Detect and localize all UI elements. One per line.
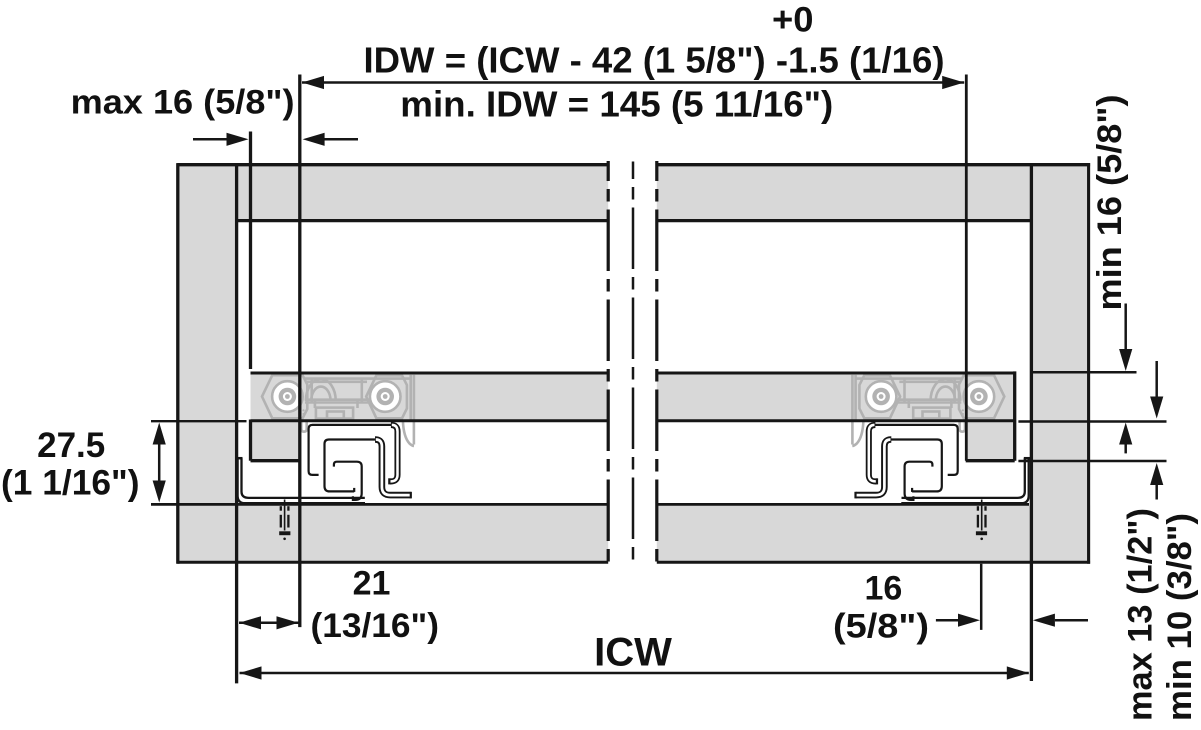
svg-text:IDW = (ICW - 42 (1 5/8") -1.5: IDW = (ICW - 42 (1 5/8") -1.5 (1/16)	[364, 39, 945, 80]
svg-text:16: 16	[864, 570, 902, 608]
svg-text:21: 21	[353, 564, 391, 602]
svg-text:min 10 (3/8"): min 10 (3/8")	[1161, 513, 1199, 721]
svg-text:min 16 (5/8"): min 16 (5/8")	[1091, 95, 1129, 311]
svg-text:27.5: 27.5	[37, 426, 105, 465]
svg-text:max 13 (1/2"): max 13 (1/2")	[1122, 508, 1160, 721]
svg-text:+0: +0	[772, 0, 814, 39]
svg-text:(5/8"): (5/8")	[833, 608, 929, 646]
svg-text:(1 1/16"): (1 1/16")	[1, 463, 140, 502]
svg-text:min. IDW = 145 (5 11/16"): min. IDW = 145 (5 11/16")	[400, 84, 833, 125]
svg-text:(13/16"): (13/16")	[311, 607, 440, 645]
svg-text:max 16 (5/8"): max 16 (5/8")	[71, 84, 295, 122]
svg-text:ICW: ICW	[594, 631, 672, 675]
